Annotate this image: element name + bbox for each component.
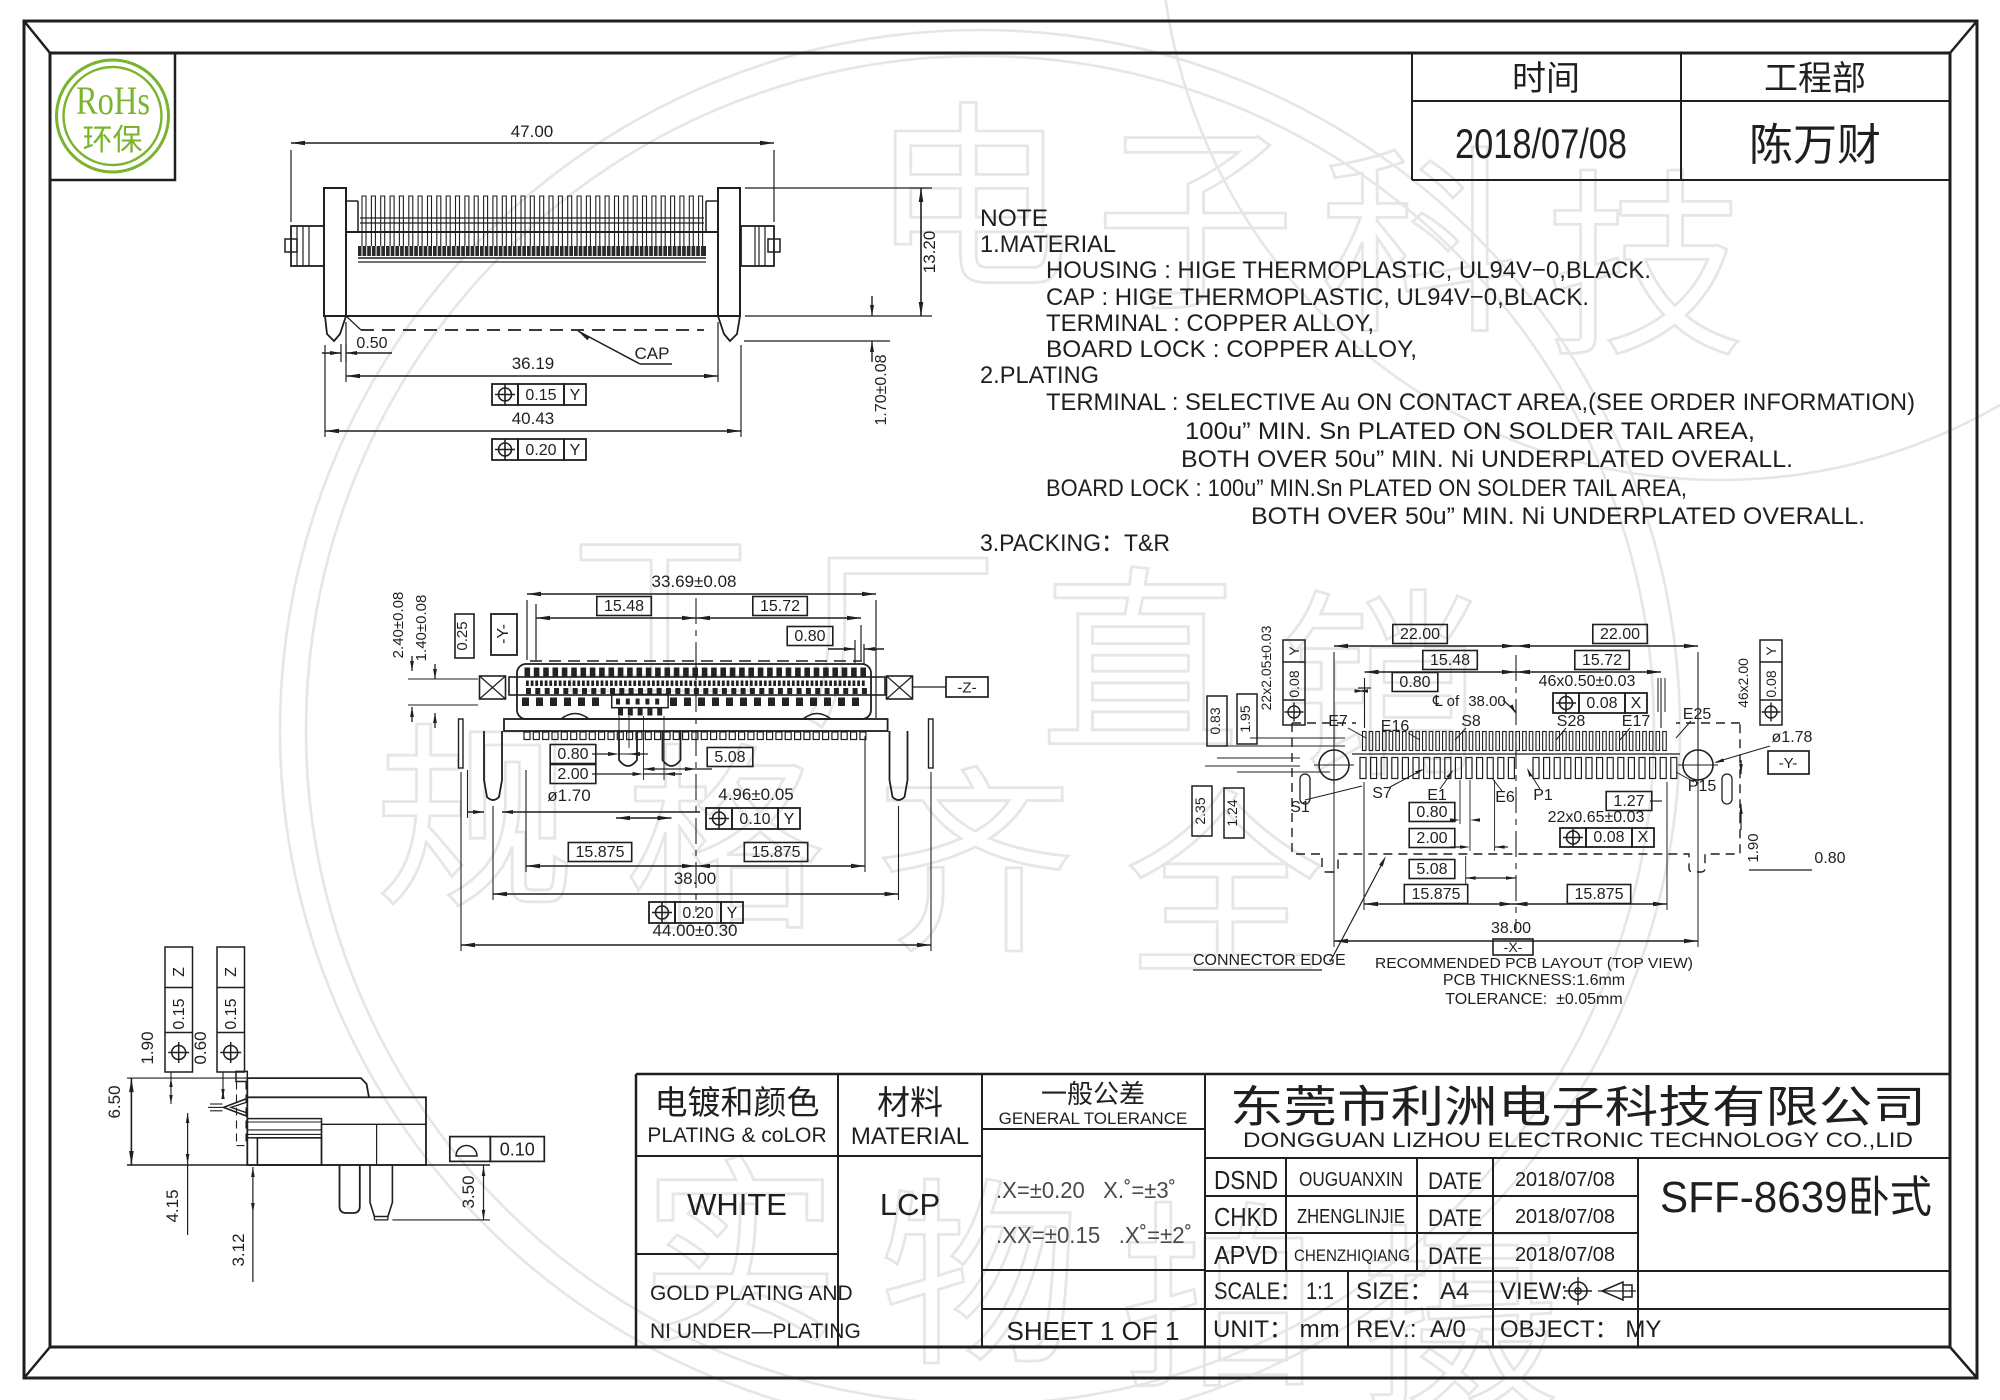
svg-text:℄ of: ℄ of [1432,693,1460,710]
svg-text:.XX=±0.15 .X˚=±2˚: .XX=±0.15 .X˚=±2˚ [996,1222,1192,1248]
svg-text:CHKD: CHKD [1214,1202,1278,1232]
svg-text:40.43: 40.43 [512,409,555,428]
svg-text:ZHENGLINJIE: ZHENGLINJIE [1297,1206,1405,1228]
svg-text:摄: 摄 [1360,1213,1560,1400]
svg-text:0.20: 0.20 [525,442,556,459]
svg-text:0.60: 0.60 [191,1031,210,1064]
svg-text:规: 规 [375,710,575,933]
svg-text:WHITE: WHITE [687,1187,787,1222]
svg-text:3.12: 3.12 [229,1233,248,1266]
svg-text:46x0.50±0.03: 46x0.50±0.03 [1539,673,1636,690]
svg-text:0.08: 0.08 [1593,829,1624,846]
svg-text:PCB THICKNESS:1.6mm: PCB THICKNESS:1.6mm [1443,972,1625,989]
svg-text:DATE: DATE [1428,1243,1482,1270]
svg-text:Y: Y [570,387,581,404]
svg-text:OUGUANXIN: OUGUANXIN [1299,1169,1403,1191]
svg-text:-Y-: -Y- [495,624,512,644]
svg-text:3.50: 3.50 [459,1175,478,1208]
svg-text:S28: S28 [1557,713,1586,730]
svg-text:厂: 厂 [800,532,1000,755]
svg-text:36.19: 36.19 [512,354,555,373]
svg-text:TERMINAL : COPPER ALLOY,: TERMINAL : COPPER ALLOY, [1046,310,1374,337]
svg-text:2018/07/08: 2018/07/08 [1455,120,1627,167]
svg-text:5.08: 5.08 [714,749,745,766]
svg-text:SIZE： A4: SIZE： A4 [1356,1278,1469,1305]
svg-text:TOLERANCE: ±0.05mm: TOLERANCE: ±0.05mm [1445,991,1622,1008]
svg-text:2.PLATING: 2.PLATING [980,362,1099,389]
svg-text:33.69±0.08: 33.69±0.08 [652,572,737,591]
svg-text:DSND: DSND [1214,1165,1278,1195]
svg-text:X: X [1638,829,1649,846]
svg-text:东莞市利洲电子科技有限公司: 东莞市利洲电子科技有限公司 [1230,1083,1926,1132]
svg-text:CONNECTOR EDGE: CONNECTOR EDGE [1193,952,1346,969]
svg-text:4.96±0.05: 4.96±0.05 [718,785,794,804]
svg-text:APVD: APVD [1214,1240,1278,1270]
svg-text:CAP : HIGE THERMOPLASTIC, UL94: CAP : HIGE THERMOPLASTIC, UL94V−0,BLACK. [1046,284,1589,311]
svg-text:6.50: 6.50 [105,1085,124,1118]
svg-text:HOUSING : HIGE THERMOPLASTIC,: HOUSING : HIGE THERMOPLASTIC, UL94V−0,BL… [1046,257,1651,284]
svg-text:1.27: 1.27 [1613,793,1644,810]
svg-text:Z: Z [223,967,240,977]
svg-text:44.00±0.30: 44.00±0.30 [653,921,738,940]
svg-text:ø1.78: ø1.78 [1772,729,1813,746]
svg-text:电: 电 [870,90,1070,313]
svg-text:15.72: 15.72 [1582,652,1622,669]
svg-text:2018/07/08: 2018/07/08 [1515,1206,1615,1228]
svg-text:1.90: 1.90 [1745,833,1762,862]
svg-text:电镀和颜色: 电镀和颜色 [655,1084,820,1121]
svg-text:Y: Y [1763,646,1779,656]
svg-text:2.40±0.08: 2.40±0.08 [390,592,407,659]
svg-text:DATE: DATE [1428,1205,1482,1232]
svg-text:S7: S7 [1372,785,1392,802]
svg-text:Y: Y [570,442,581,459]
svg-text:15.875: 15.875 [576,844,625,861]
svg-text:-X-: -X- [1504,939,1523,955]
svg-text:CHENZHIQIANG: CHENZHIQIANG [1294,1246,1410,1265]
svg-text:SFF-8639卧式: SFF-8639卧式 [1660,1173,1932,1222]
svg-text:1.95: 1.95 [1237,705,1253,732]
svg-text:0.15: 0.15 [171,998,188,1029]
svg-text:2018/07/08: 2018/07/08 [1515,1169,1615,1191]
svg-text:1.70±0.08: 1.70±0.08 [873,354,890,425]
svg-text:E17: E17 [1622,713,1651,730]
svg-text:0.08: 0.08 [1763,670,1779,697]
svg-text:100u” MIN. Sn PLATED ON SOLDER: 100u” MIN. Sn PLATED ON SOLDER TAIL AREA… [1185,418,1755,445]
svg-text:0.80: 0.80 [1416,804,1447,821]
svg-text:3.PACKING：T&R: 3.PACKING：T&R [980,530,1170,557]
svg-text:2.00: 2.00 [557,766,588,783]
svg-text:E6: E6 [1495,789,1515,806]
svg-text:S1: S1 [1290,799,1310,816]
svg-text:0.80: 0.80 [1814,850,1845,867]
svg-text:38.00: 38.00 [1491,920,1531,937]
svg-text:BOTH OVER 50u” MIN. Ni UNDERPL: BOTH OVER 50u” MIN. Ni UNDERPLATED OVERA… [1181,446,1793,473]
svg-text:VIEW:: VIEW: [1500,1278,1568,1305]
svg-text:UNIT： mm: UNIT： mm [1213,1316,1340,1343]
svg-text:38.00: 38.00 [1468,693,1506,710]
svg-text:-Z-: -Z- [957,680,976,697]
svg-text:ø1.70: ø1.70 [547,786,590,805]
svg-text:0.80: 0.80 [794,628,825,645]
svg-text:15.875: 15.875 [1575,886,1624,903]
svg-text:NOTE: NOTE [980,205,1048,232]
svg-text:22x2.05±0.03: 22x2.05±0.03 [1258,625,1274,710]
svg-text:46x2.00: 46x2.00 [1735,658,1751,708]
svg-text:E25: E25 [1683,706,1712,723]
svg-text:22.00: 22.00 [1600,626,1640,643]
svg-text:0.15: 0.15 [223,998,240,1029]
svg-text:0.10: 0.10 [739,811,770,828]
svg-text:5.08: 5.08 [1416,861,1447,878]
svg-text:DONGGUAN LIZHOU ELECTRONIC TEC: DONGGUAN LIZHOU ELECTRONIC TECHNOLOGY CO… [1243,1129,1913,1152]
svg-text:0.08: 0.08 [1286,670,1302,697]
svg-text:SCALE： 1:1: SCALE： 1:1 [1214,1278,1334,1305]
svg-text:P1: P1 [1533,787,1553,804]
svg-text:0.83: 0.83 [1207,707,1223,734]
svg-text:15.48: 15.48 [1430,652,1470,669]
svg-text:Z: Z [171,967,188,977]
svg-text:47.00: 47.00 [511,122,554,141]
svg-text:Y: Y [1286,646,1302,656]
svg-text:OBJECT： MY: OBJECT： MY [1500,1316,1661,1343]
svg-text:E1: E1 [1427,787,1447,804]
svg-text:BOTH OVER 50u” MIN. Ni UNDERPL: BOTH OVER 50u” MIN. Ni UNDERPLATED OVERA… [1251,503,1865,530]
svg-text:2.35: 2.35 [1192,797,1208,824]
svg-text:0.25: 0.25 [454,621,471,650]
svg-text:15.875: 15.875 [1412,886,1461,903]
svg-text:0.50: 0.50 [356,335,387,352]
svg-text:0.08: 0.08 [1586,695,1617,712]
svg-text:销: 销 [1280,578,1480,801]
svg-text:BOARD LOCK : COPPER ALLOY,: BOARD LOCK : COPPER ALLOY, [1046,336,1417,363]
svg-text:工程部: 工程部 [1764,60,1866,98]
svg-text:NI UNDER—PLATING: NI UNDER—PLATING [650,1320,861,1343]
svg-text:E7: E7 [1328,713,1348,730]
svg-text:15.875: 15.875 [752,844,801,861]
svg-text:TERMINAL : SELECTIVE Au ON CON: TERMINAL : SELECTIVE Au ON CONTACT AREA,… [1046,389,1915,416]
svg-text:GOLD PLATING AND: GOLD PLATING AND [650,1282,853,1305]
svg-text:.X=±0.20 X.˚=±3˚: .X=±0.20 X.˚=±3˚ [996,1177,1176,1203]
svg-text:陈万财: 陈万财 [1749,121,1881,170]
svg-text:15.48: 15.48 [604,598,644,615]
svg-text:0.15: 0.15 [525,387,556,404]
svg-text:时间: 时间 [1512,60,1580,98]
svg-text:Y: Y [784,811,795,828]
svg-text:Y: Y [727,905,738,922]
svg-text:环保: 环保 [83,124,143,157]
svg-text:直: 直 [1040,555,1240,778]
svg-text:2018/07/08: 2018/07/08 [1515,1244,1615,1266]
svg-text:BOARD LOCK : 100u” MIN.Sn PLAT: BOARD LOCK : 100u” MIN.Sn PLATED ON SOLD… [1046,475,1687,502]
svg-text:22.00: 22.00 [1400,626,1440,643]
svg-text:PLATING & coLOR: PLATING & coLOR [647,1124,826,1147]
svg-text:CAP: CAP [635,344,670,363]
svg-text:2.00: 2.00 [1416,830,1447,847]
svg-text:1.24: 1.24 [1224,799,1240,826]
svg-text:1.MATERIAL: 1.MATERIAL [980,231,1116,258]
svg-text:材料: 材料 [877,1084,943,1121]
svg-text:LCP: LCP [880,1187,940,1222]
svg-text:1.90: 1.90 [138,1031,157,1064]
svg-text:-Y-: -Y- [1779,755,1798,772]
svg-text:S8: S8 [1461,713,1481,730]
svg-text:4.15: 4.15 [163,1189,182,1222]
svg-text:SHEET 1 OF 1: SHEET 1 OF 1 [1007,1316,1180,1346]
svg-text:RoHs: RoHs [76,78,150,123]
svg-text:15.72: 15.72 [760,598,800,615]
svg-text:0.20: 0.20 [682,905,713,922]
svg-text:DATE: DATE [1428,1168,1482,1195]
svg-text:MATERIAL: MATERIAL [851,1123,969,1150]
svg-text:0.80: 0.80 [1399,674,1430,691]
svg-text:22x0.65±0.03: 22x0.65±0.03 [1548,809,1645,826]
svg-text:1.40±0.08: 1.40±0.08 [413,595,430,662]
svg-text:REV.: A/0: REV.: A/0 [1356,1316,1466,1343]
svg-text:0.10: 0.10 [500,1140,535,1160]
svg-text:GENERAL TOLERANCE: GENERAL TOLERANCE [999,1109,1188,1128]
svg-text:E16: E16 [1381,718,1410,735]
svg-text:38.00: 38.00 [674,869,717,888]
svg-text:一般公差: 一般公差 [1041,1079,1145,1109]
svg-text:X: X [1631,695,1642,712]
svg-text:0.80: 0.80 [557,746,588,763]
svg-text:RECOMMENDED PCB LAYOUT (TOP VI: RECOMMENDED PCB LAYOUT (TOP VIEW) [1375,955,1693,972]
svg-text:13.20: 13.20 [920,231,939,274]
